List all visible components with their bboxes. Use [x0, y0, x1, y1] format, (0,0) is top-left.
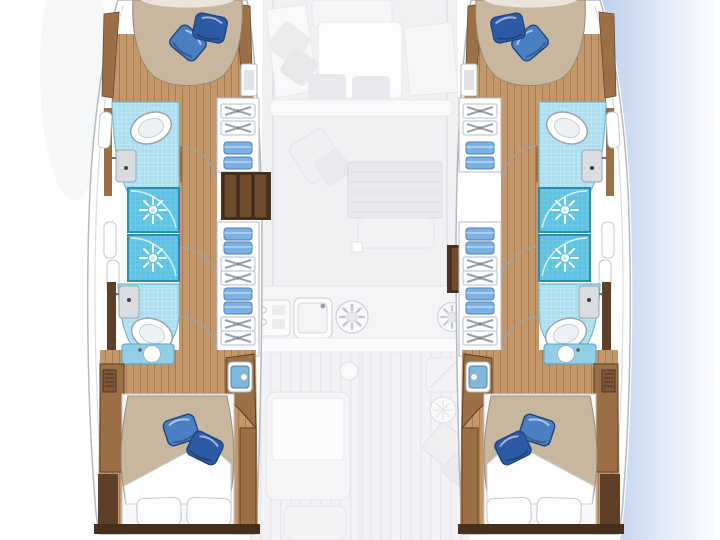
- towel-shelf-icon: [466, 157, 494, 169]
- utensil-drawer-icon: [463, 257, 497, 271]
- towel-shelf-icon: [466, 228, 494, 240]
- starboard-hull: [447, 0, 630, 534]
- port-storage-aft: [217, 222, 259, 356]
- salon-table: [348, 162, 442, 218]
- pillow-blue: [192, 12, 229, 44]
- washbasin: [112, 150, 136, 182]
- towel-shelf-icon: [466, 302, 494, 314]
- port-storage-forward: [217, 98, 259, 172]
- cockpit-table: [266, 392, 350, 500]
- towel-shelf-icon: [224, 288, 252, 300]
- utensil-drawer-icon: [221, 317, 255, 331]
- utensil-drawer-icon: [463, 331, 497, 345]
- utensil-drawer-icon: [221, 257, 255, 271]
- galley: [247, 286, 473, 342]
- hull-window: [602, 222, 614, 258]
- towel-shelf-icon: [466, 288, 494, 300]
- starboard-storage-aft: [459, 222, 501, 356]
- hull-window: [104, 222, 116, 258]
- utensil-drawer-icon: [221, 104, 255, 118]
- port-corridor-floor: [179, 100, 217, 362]
- towel-shelf-icon: [224, 157, 252, 169]
- transom: [94, 524, 260, 534]
- utensil-drawer-icon: [221, 331, 255, 345]
- wardrobe: [594, 364, 618, 472]
- towel-shelf-icon: [466, 142, 494, 154]
- shower-head-icon: [552, 197, 578, 223]
- starboard-corridor-floor: [501, 100, 539, 362]
- towel-shelf-icon: [224, 242, 252, 254]
- shower-stall: [128, 188, 179, 232]
- shower-stall: [128, 235, 179, 281]
- salon-bench: [358, 218, 434, 248]
- cooktop-burner-icon: [336, 301, 368, 333]
- hull-window: [98, 112, 112, 149]
- starboard-aft-cabin: [458, 344, 624, 534]
- pillow-blue: [490, 12, 527, 44]
- utensil-drawer-icon: [463, 271, 497, 285]
- starboard-aft-berth: [484, 394, 597, 534]
- washbasin: [116, 286, 139, 318]
- utensil-drawer-icon: [463, 104, 497, 118]
- shower-head-icon: [140, 245, 166, 271]
- sliding-door: [240, 338, 480, 352]
- utensil-drawer-icon: [463, 317, 497, 331]
- utensil-drawer-icon: [463, 121, 497, 135]
- washbasin: [582, 150, 606, 182]
- catamaran-floorplan-page: [0, 0, 720, 540]
- hull-window: [606, 112, 620, 149]
- shower-head-icon: [552, 245, 578, 271]
- transom: [458, 524, 624, 534]
- shower-stall: [539, 235, 590, 281]
- utensil-drawer-icon: [221, 121, 255, 135]
- galley-sink: [294, 298, 332, 338]
- port-hull: [88, 0, 271, 534]
- port-aft-berth: [121, 394, 234, 534]
- wardrobe: [100, 364, 124, 472]
- main-deck: [240, 0, 480, 540]
- towel-shelf-icon: [224, 142, 252, 154]
- shower-head-icon: [140, 197, 166, 223]
- vanity: [122, 344, 174, 364]
- utensil-drawer-icon: [221, 271, 255, 285]
- towel-shelf-icon: [224, 302, 252, 314]
- starboard-storage-forward: [459, 98, 501, 172]
- deck-hatch: [340, 362, 358, 380]
- towel-shelf-icon: [224, 228, 252, 240]
- shower-stall: [539, 188, 590, 232]
- washbasin: [579, 286, 602, 318]
- catamaran-floorplan: [0, 0, 720, 540]
- vanity: [544, 344, 596, 364]
- towel-shelf-icon: [466, 242, 494, 254]
- port-companionway-steps: [221, 172, 271, 220]
- port-aft-cabin: [94, 344, 260, 534]
- port-shower-stalls: [128, 188, 179, 281]
- starboard-shower-stalls: [539, 188, 590, 281]
